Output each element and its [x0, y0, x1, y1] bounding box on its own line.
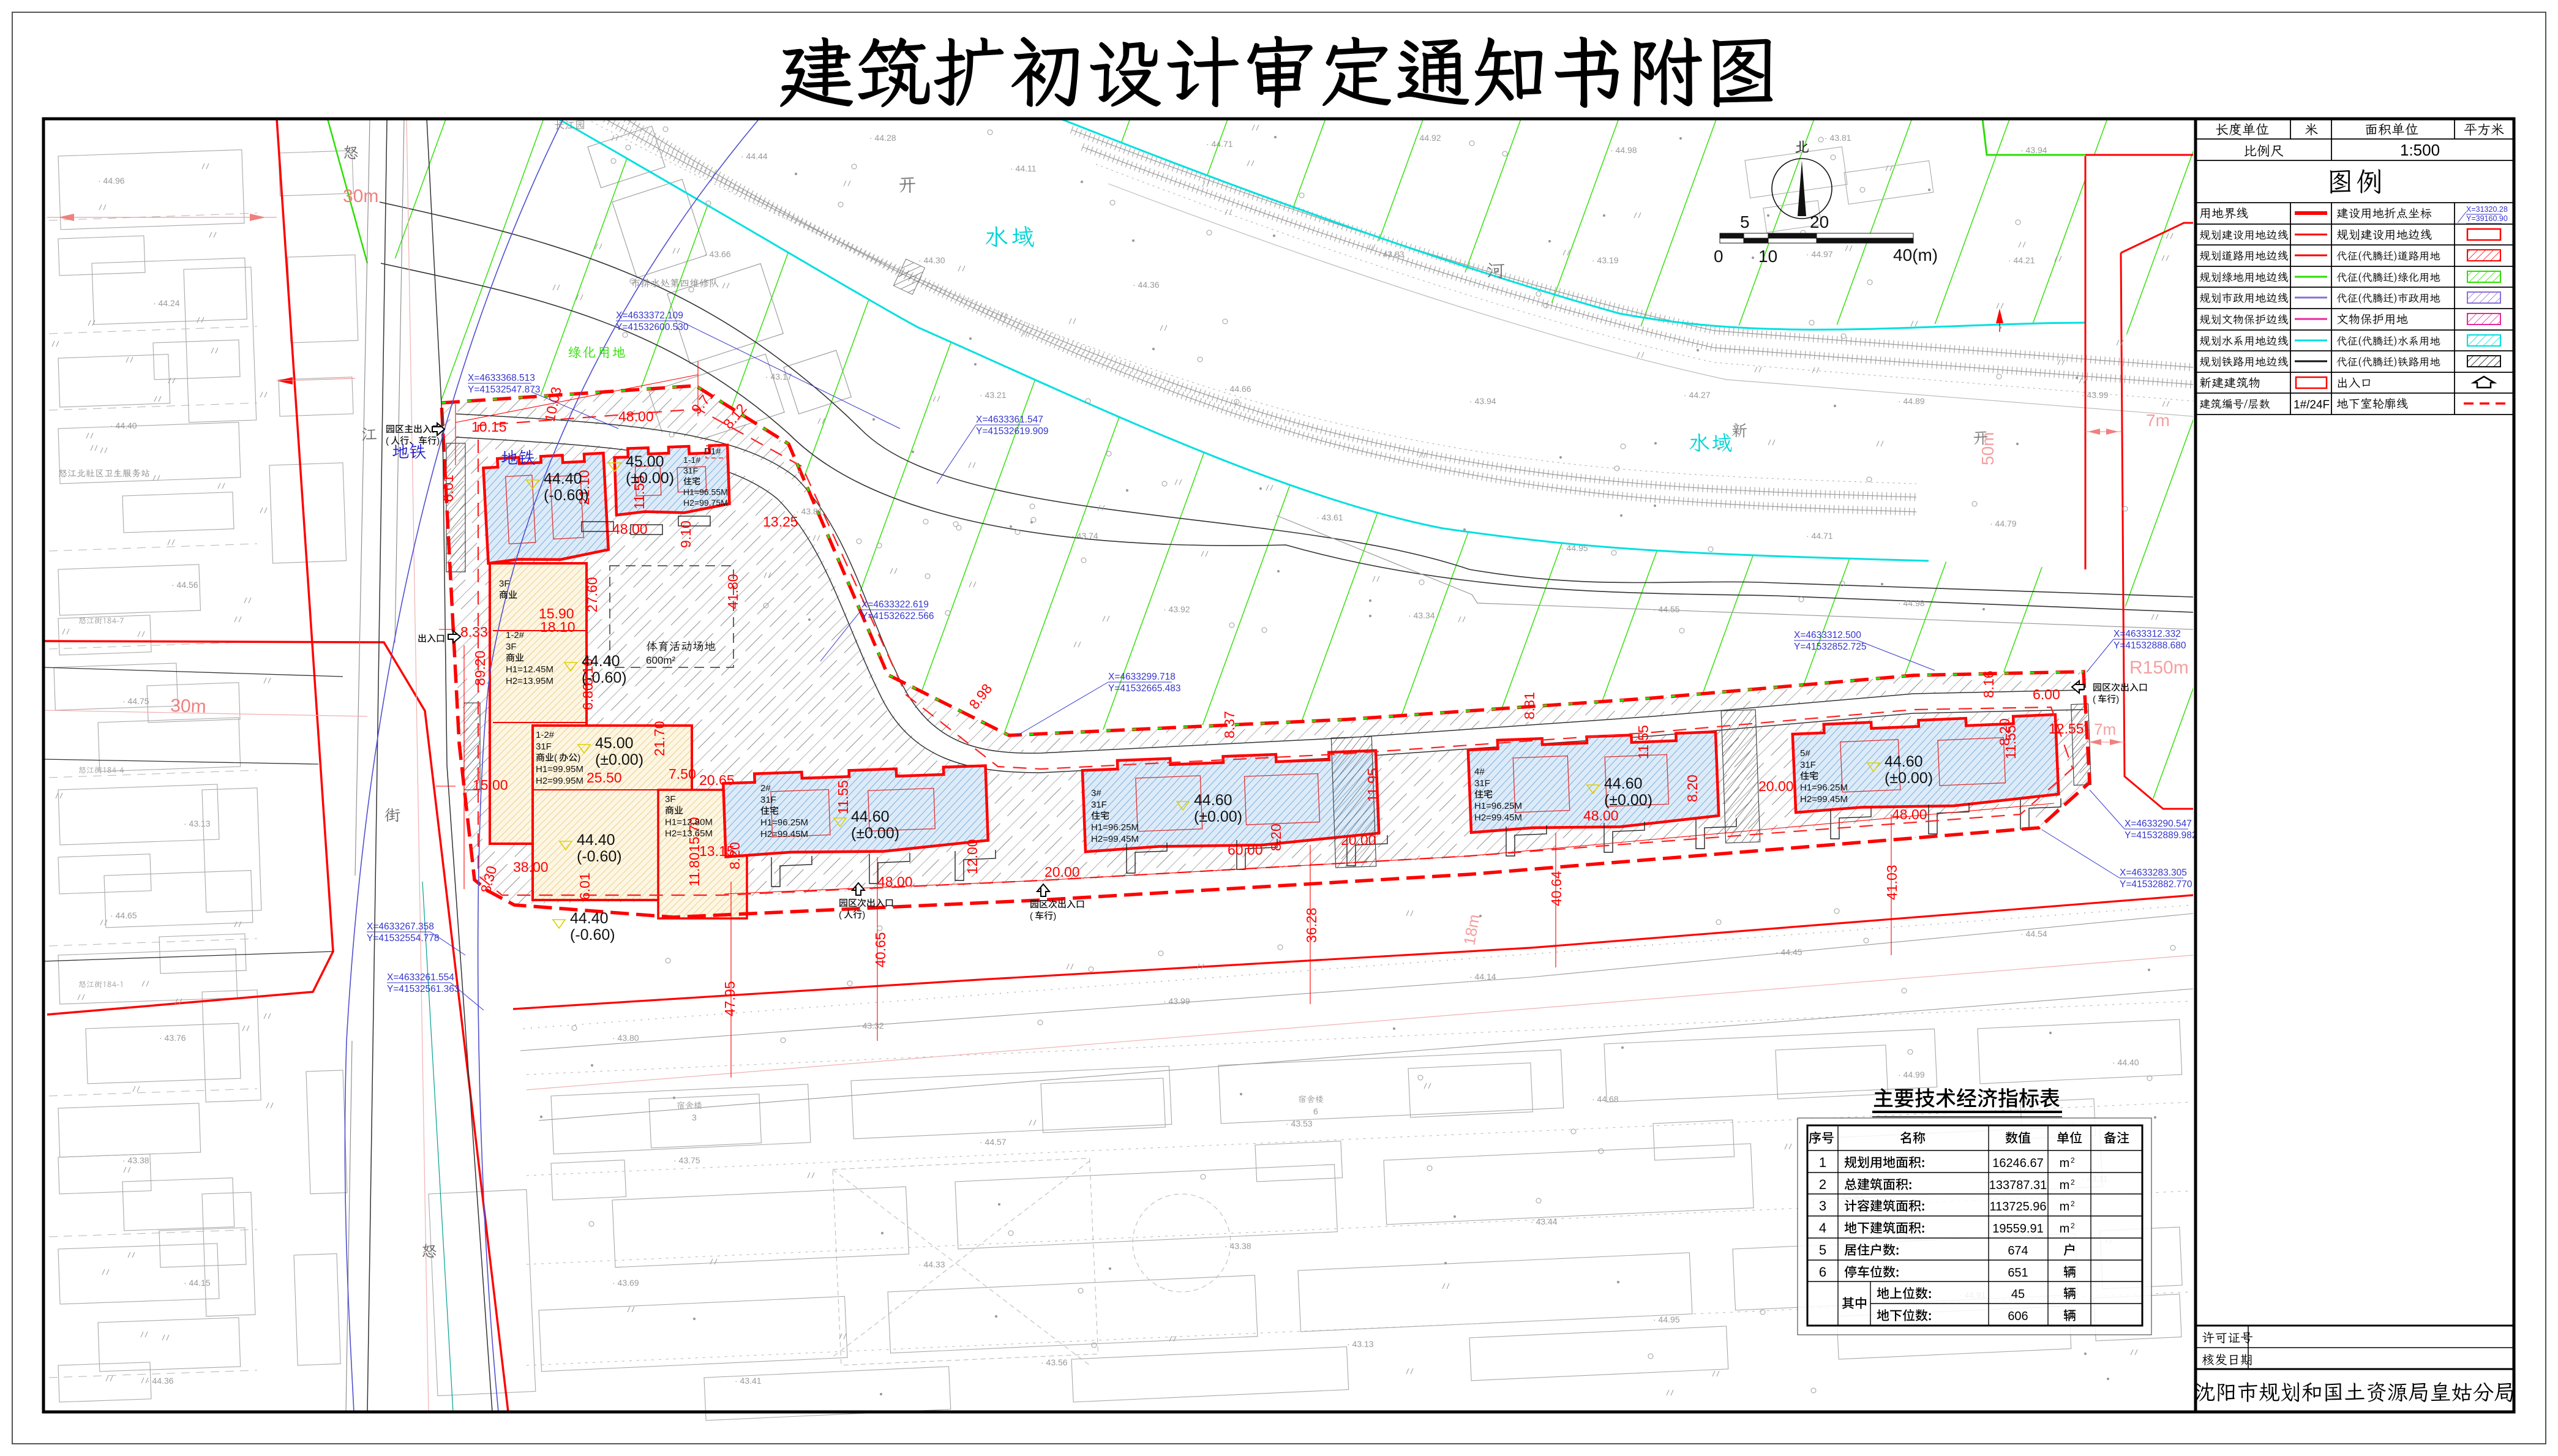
svg-text:· 44.99: · 44.99 [1898, 1070, 1925, 1079]
svg-text:· 44.11: · 44.11 [1010, 163, 1037, 173]
svg-text:X=4633283.305: X=4633283.305 [2120, 868, 2187, 878]
svg-text:21.70: 21.70 [651, 721, 667, 756]
svg-text:(-0.60): (-0.60) [577, 848, 622, 865]
svg-text:31F: 31F [1474, 778, 1490, 789]
svg-text:X=4633312.332: X=4633312.332 [2114, 629, 2181, 639]
svg-text:8.81: 8.81 [1521, 692, 1537, 719]
svg-text:41.03: 41.03 [1884, 865, 1900, 900]
svg-text:9.10: 9.10 [678, 520, 694, 548]
svg-text:(±0.00): (±0.00) [626, 470, 674, 487]
svg-text:H2=13.95M: H2=13.95M [506, 676, 553, 686]
svg-text:4#: 4# [1474, 767, 1485, 777]
svg-text:6: 6 [1313, 1106, 1318, 1116]
svg-text:11.55: 11.55 [835, 780, 851, 814]
svg-text:X=4633290.547: X=4633290.547 [2125, 819, 2192, 829]
svg-text:X=4633372.109: X=4633372.109 [616, 310, 683, 321]
svg-text:3F: 3F [499, 579, 510, 589]
svg-text:): ) [577, 753, 580, 764]
svg-text:2: 2 [2071, 1221, 2075, 1230]
svg-text:5: 5 [1740, 212, 1750, 231]
svg-text:· 44.15: · 44.15 [184, 1278, 211, 1288]
svg-text:1-2#: 1-2# [536, 730, 555, 740]
svg-text:(-0.60): (-0.60) [570, 926, 615, 944]
svg-text:· 44.89: · 44.89 [1898, 396, 1925, 406]
svg-text:12.55: 12.55 [2049, 721, 2084, 737]
svg-text:8.16: 8.16 [1981, 670, 1997, 698]
svg-text:(±0.00): (±0.00) [1194, 808, 1242, 825]
svg-text:Y=41532619.909: Y=41532619.909 [976, 426, 1049, 437]
svg-text:3F: 3F [665, 794, 676, 805]
svg-text:· 44.33: · 44.33 [918, 1259, 945, 1269]
svg-text:H1=96.25M: H1=96.25M [1800, 782, 1848, 793]
svg-text:44.40: 44.40 [577, 831, 615, 849]
svg-text:18.10: 18.10 [540, 619, 576, 635]
svg-text:H2=99.75M: H2=99.75M [683, 498, 728, 508]
svg-text:(±0.00): (±0.00) [851, 825, 899, 842]
svg-text:X=4633312.500: X=4633312.500 [1794, 630, 1861, 640]
svg-text:651: 651 [2008, 1266, 2028, 1280]
svg-text:41.80: 41.80 [725, 574, 741, 609]
svg-text:600m²: 600m² [646, 655, 676, 666]
svg-text:10.15: 10.15 [471, 419, 507, 435]
svg-text:3F: 3F [506, 642, 517, 652]
svg-text:19559.91: 19559.91 [1992, 1222, 2043, 1236]
svg-text:D1#: D1# [704, 446, 721, 457]
svg-text:8.20: 8.20 [1684, 775, 1700, 802]
svg-text:Y=41532561.363: Y=41532561.363 [387, 984, 460, 994]
svg-text:6.80: 6.80 [580, 683, 596, 710]
svg-text:(: ( [554, 753, 557, 764]
svg-text:Y=39160.90: Y=39160.90 [2466, 214, 2508, 223]
svg-text:Y=41532622.566: Y=41532622.566 [861, 611, 934, 621]
svg-text:6.01: 6.01 [440, 475, 456, 502]
svg-text:· 44.97: · 44.97 [1806, 249, 1833, 259]
svg-text:· 43.80: · 43.80 [612, 1033, 639, 1043]
svg-text:· 43.83: · 43.83 [1378, 249, 1405, 259]
svg-text:1:500: 1:500 [2400, 141, 2440, 159]
svg-text:· 44.92: · 44.92 [1414, 133, 1441, 143]
svg-text:· 43.99: · 43.99 [1163, 996, 1190, 1006]
svg-text:20.65: 20.65 [699, 772, 735, 788]
svg-text:X=4633267.358: X=4633267.358 [367, 921, 434, 932]
svg-text:2: 2 [2071, 1178, 2075, 1187]
svg-text:· 44.71: · 44.71 [1806, 531, 1833, 541]
svg-text:H1=12.45M: H1=12.45M [506, 664, 553, 675]
svg-text:· 43.44: · 43.44 [1531, 1217, 1558, 1226]
svg-text:48.00: 48.00 [1583, 808, 1619, 824]
svg-text:R150m: R150m [2129, 658, 2189, 678]
svg-text:H1=12.80M: H1=12.80M [665, 817, 713, 828]
svg-text:44.40: 44.40 [570, 910, 609, 927]
svg-text:47.95: 47.95 [722, 981, 738, 1016]
svg-text:· 43.13: · 43.13 [184, 819, 211, 828]
svg-text:· 43.41: · 43.41 [735, 1376, 762, 1386]
svg-text:H1=99.95M: H1=99.95M [536, 764, 583, 775]
svg-text:· 43.81: · 43.81 [1825, 133, 1851, 143]
svg-text:· 44.55: · 44.55 [1653, 604, 1680, 614]
svg-text:· 44.68: · 44.68 [1592, 1094, 1619, 1104]
svg-text:40.65: 40.65 [872, 932, 888, 967]
svg-text:Y=41532889.982: Y=41532889.982 [2125, 830, 2197, 841]
svg-text:H2=99.95M: H2=99.95M [536, 776, 583, 786]
svg-text:48.00: 48.00 [618, 408, 654, 424]
svg-text:· 44.98: · 44.98 [1610, 145, 1637, 155]
svg-text:13.25: 13.25 [763, 514, 798, 530]
svg-text:(±0.00): (±0.00) [595, 751, 643, 768]
svg-text:20.00: 20.00 [1341, 832, 1376, 848]
svg-text:11.55: 11.55 [1635, 725, 1651, 759]
svg-text:m: m [2060, 1179, 2070, 1192]
svg-text:· 43.99: · 43.99 [2082, 390, 2109, 400]
svg-text:· 44.56: · 44.56 [171, 580, 198, 590]
svg-text:· 44.44: · 44.44 [741, 151, 768, 161]
svg-text:· 43.74: · 43.74 [1071, 531, 1098, 541]
svg-text:· 44.71: · 44.71 [1206, 139, 1233, 149]
svg-text:44.60: 44.60 [851, 808, 890, 825]
svg-text:· 44.95: · 44.95 [1653, 1315, 1680, 1324]
svg-text:m: m [2060, 1200, 2070, 1214]
svg-text:48.00: 48.00 [612, 521, 648, 537]
svg-text:44.60: 44.60 [1885, 753, 1923, 770]
svg-text:12.00: 12.00 [964, 839, 980, 874]
svg-text:8.33: 8.33 [460, 624, 488, 640]
svg-text:31F: 31F [1800, 760, 1816, 770]
svg-text:H1=96.25M: H1=96.25M [1474, 801, 1522, 811]
svg-text:X=4633361.547: X=4633361.547 [976, 415, 1043, 425]
svg-text:· 43.17: · 43.17 [765, 372, 792, 381]
svg-text:(: ( [386, 436, 389, 446]
svg-text:H1=96.25M: H1=96.25M [1091, 822, 1139, 833]
svg-text:· 43.61: · 43.61 [1316, 512, 1343, 522]
svg-text:m: m [2060, 1157, 2070, 1170]
svg-text:25.50: 25.50 [587, 770, 622, 786]
svg-text:16246.67: 16246.67 [1992, 1157, 2043, 1170]
svg-text:Y=41532600.530: Y=41532600.530 [616, 322, 689, 332]
svg-text:5#: 5# [1800, 748, 1810, 759]
svg-text:· 44.75: · 44.75 [122, 696, 149, 706]
svg-text:): ) [862, 910, 865, 920]
svg-text:X=4633299.718: X=4633299.718 [1108, 672, 1176, 682]
svg-text:H2=99.45M: H2=99.45M [760, 829, 808, 839]
svg-text:X=31320.28: X=31320.28 [2466, 205, 2508, 214]
svg-text:60.00: 60.00 [1228, 842, 1263, 858]
svg-text:2: 2 [2071, 1156, 2075, 1165]
svg-text:H2=13.65M: H2=13.65M [665, 828, 713, 839]
svg-text:31F: 31F [683, 466, 698, 476]
svg-text:· 43.38: · 43.38 [122, 1155, 149, 1165]
svg-text:(: ( [2093, 694, 2096, 705]
svg-text:2: 2 [2071, 1199, 2075, 1208]
svg-text:20: 20 [1810, 212, 1829, 231]
svg-text:· 44.54: · 44.54 [2020, 929, 2047, 939]
svg-text:· 43.19: · 43.19 [1592, 255, 1619, 265]
svg-text:3: 3 [692, 1113, 697, 1122]
svg-text:· 44.36: · 44.36 [147, 1376, 174, 1386]
svg-text:674: 674 [2008, 1244, 2028, 1258]
svg-text:· 43.76: · 43.76 [159, 1033, 186, 1043]
svg-text:133787.31: 133787.31 [1989, 1179, 2047, 1192]
svg-text:· 43.81: · 43.81 [796, 506, 823, 516]
svg-text:2: 2 [1819, 1177, 1826, 1192]
svg-text:45: 45 [2011, 1288, 2025, 1301]
svg-text:30m: 30m [343, 186, 378, 206]
svg-text:1-2#: 1-2# [506, 630, 525, 640]
svg-text:· 44.79: · 44.79 [1990, 519, 2017, 528]
svg-text:1: 1 [1819, 1155, 1826, 1170]
svg-text:· 43.32: · 43.32 [857, 1021, 884, 1030]
svg-text:· 44.40: · 44.40 [110, 421, 137, 430]
svg-text:36.28: 36.28 [1303, 907, 1319, 943]
svg-text:· 44.30: · 44.30 [918, 255, 945, 265]
svg-text:(-0.60): (-0.60) [582, 669, 627, 686]
svg-text:m: m [2060, 1222, 2070, 1236]
svg-text:· 44.40: · 44.40 [2112, 1057, 2139, 1067]
svg-text:7m: 7m [2094, 720, 2116, 738]
svg-text:5: 5 [1819, 1242, 1826, 1258]
svg-text:X=4633368.513: X=4633368.513 [468, 373, 535, 383]
svg-text:8.20: 8.20 [1268, 824, 1284, 851]
svg-text:· 44.96: · 44.96 [98, 176, 125, 186]
svg-text:X=4633261.554: X=4633261.554 [387, 972, 454, 983]
svg-text:2#: 2# [760, 783, 771, 794]
svg-text:· 43.21: · 43.21 [980, 390, 1007, 400]
svg-text:· 43.38: · 43.38 [1225, 1241, 1251, 1251]
svg-text:606: 606 [2008, 1310, 2028, 1323]
svg-text:1-1#: 1-1# [683, 455, 700, 465]
svg-text:6: 6 [1819, 1264, 1826, 1280]
svg-text:31F: 31F [536, 741, 552, 752]
svg-text:45.00: 45.00 [626, 453, 664, 470]
svg-text:6.00: 6.00 [2033, 686, 2060, 702]
svg-text:H2=99.45M: H2=99.45M [1800, 794, 1848, 805]
svg-text:H1=96.55M: H1=96.55M [683, 487, 728, 497]
svg-text:3#: 3# [1091, 788, 1101, 798]
svg-text:3: 3 [1819, 1198, 1826, 1214]
svg-text:· 43.53: · 43.53 [1286, 1119, 1313, 1128]
svg-text:11.95: 11.95 [1365, 768, 1381, 802]
svg-text:H2=99.45M: H2=99.45M [1091, 834, 1139, 844]
svg-text:113725.96: 113725.96 [1989, 1200, 2046, 1214]
svg-text:0: 0 [1714, 247, 1723, 266]
svg-text:11.55: 11.55 [2003, 725, 2019, 759]
svg-text:48.00: 48.00 [877, 874, 913, 890]
svg-text:Y=41532547.873: Y=41532547.873 [468, 385, 541, 395]
svg-text:31F: 31F [1091, 800, 1107, 810]
svg-text:· 44.24: · 44.24 [153, 298, 180, 308]
svg-text:· 43.56: · 43.56 [1041, 1357, 1068, 1367]
svg-text:44.40: 44.40 [582, 653, 620, 670]
svg-text:· 44.14: · 44.14 [1469, 972, 1496, 981]
svg-text:H1=96.25M: H1=96.25M [760, 817, 808, 828]
svg-text:· 44.27: · 44.27 [1684, 390, 1711, 400]
svg-text:10: 10 [1758, 247, 1777, 266]
svg-text:31F: 31F [760, 795, 776, 805]
svg-text:4: 4 [1819, 1220, 1826, 1236]
svg-text:): ) [2116, 694, 2119, 705]
svg-text:· 43.92: · 43.92 [1163, 604, 1190, 614]
svg-text:20.00: 20.00 [1758, 778, 1794, 794]
svg-text:45.00: 45.00 [595, 735, 634, 752]
svg-text:(±0.00): (±0.00) [1604, 792, 1652, 809]
svg-text:89.20: 89.20 [472, 650, 488, 686]
svg-text:(: ( [1030, 911, 1033, 921]
svg-text:· 44.21: · 44.21 [2008, 255, 2035, 265]
svg-text:44.40: 44.40 [544, 470, 582, 487]
svg-text:): ) [1053, 911, 1056, 921]
svg-text:· 43.94: · 43.94 [2020, 145, 2047, 155]
svg-text:40.64: 40.64 [1548, 871, 1564, 906]
svg-text:· 44.36: · 44.36 [1133, 280, 1160, 290]
svg-text:48.00: 48.00 [1892, 806, 1927, 822]
svg-text:20.00: 20.00 [1045, 864, 1080, 880]
svg-text:7m: 7m [2146, 411, 2170, 430]
svg-text:8.20: 8.20 [727, 842, 743, 869]
svg-text:· 43.66: · 43.66 [704, 249, 731, 259]
svg-text:6.01: 6.01 [577, 872, 593, 900]
svg-text:· 43.69: · 43.69 [612, 1278, 639, 1288]
svg-text:1#/24F: 1#/24F [2294, 399, 2330, 411]
svg-text:· 43.94: · 43.94 [1469, 396, 1496, 406]
svg-text:15.00: 15.00 [473, 777, 508, 793]
svg-text:38.00: 38.00 [513, 859, 549, 875]
svg-text:· 44.65: · 44.65 [110, 910, 137, 920]
svg-text:· 44.95: · 44.95 [1561, 543, 1588, 553]
svg-text:(±0.00): (±0.00) [1885, 770, 1933, 787]
svg-text:Y=41532882.770: Y=41532882.770 [2120, 879, 2192, 890]
svg-text:8.37: 8.37 [1221, 711, 1237, 738]
svg-text:): ) [437, 436, 440, 446]
svg-text:40(m): 40(m) [1893, 246, 1938, 265]
svg-text:(-0.60): (-0.60) [544, 487, 589, 504]
svg-text:· 43.75: · 43.75 [673, 1155, 700, 1165]
svg-text:· 43.13: · 43.13 [1347, 1339, 1374, 1349]
svg-text:· 44.57: · 44.57 [980, 1137, 1007, 1147]
svg-text:· 44.45: · 44.45 [1776, 947, 1802, 957]
svg-text:· 43.34: · 43.34 [1408, 610, 1435, 620]
svg-text:· 44.28: · 44.28 [869, 133, 896, 143]
svg-text:(: ( [839, 910, 842, 920]
svg-text:44.60: 44.60 [1604, 775, 1643, 792]
svg-text:Y=41532665.483: Y=41532665.483 [1108, 683, 1181, 694]
svg-text:X=4633322.619: X=4633322.619 [861, 599, 929, 610]
svg-text:Y=41532554.778: Y=41532554.778 [367, 933, 440, 944]
svg-text:30m: 30m [170, 696, 206, 717]
svg-text:H2=99.45M: H2=99.45M [1474, 812, 1522, 823]
svg-text:7.50: 7.50 [669, 766, 696, 782]
svg-text:· 44.66: · 44.66 [1225, 384, 1251, 394]
svg-text:27.60: 27.60 [584, 577, 600, 612]
svg-text:44.60: 44.60 [1194, 792, 1232, 809]
svg-text:· 44.98: · 44.98 [1898, 598, 1925, 608]
svg-text:Y=41532852.725: Y=41532852.725 [1794, 642, 1867, 652]
svg-text:Y=41532888.680: Y=41532888.680 [2114, 640, 2186, 651]
